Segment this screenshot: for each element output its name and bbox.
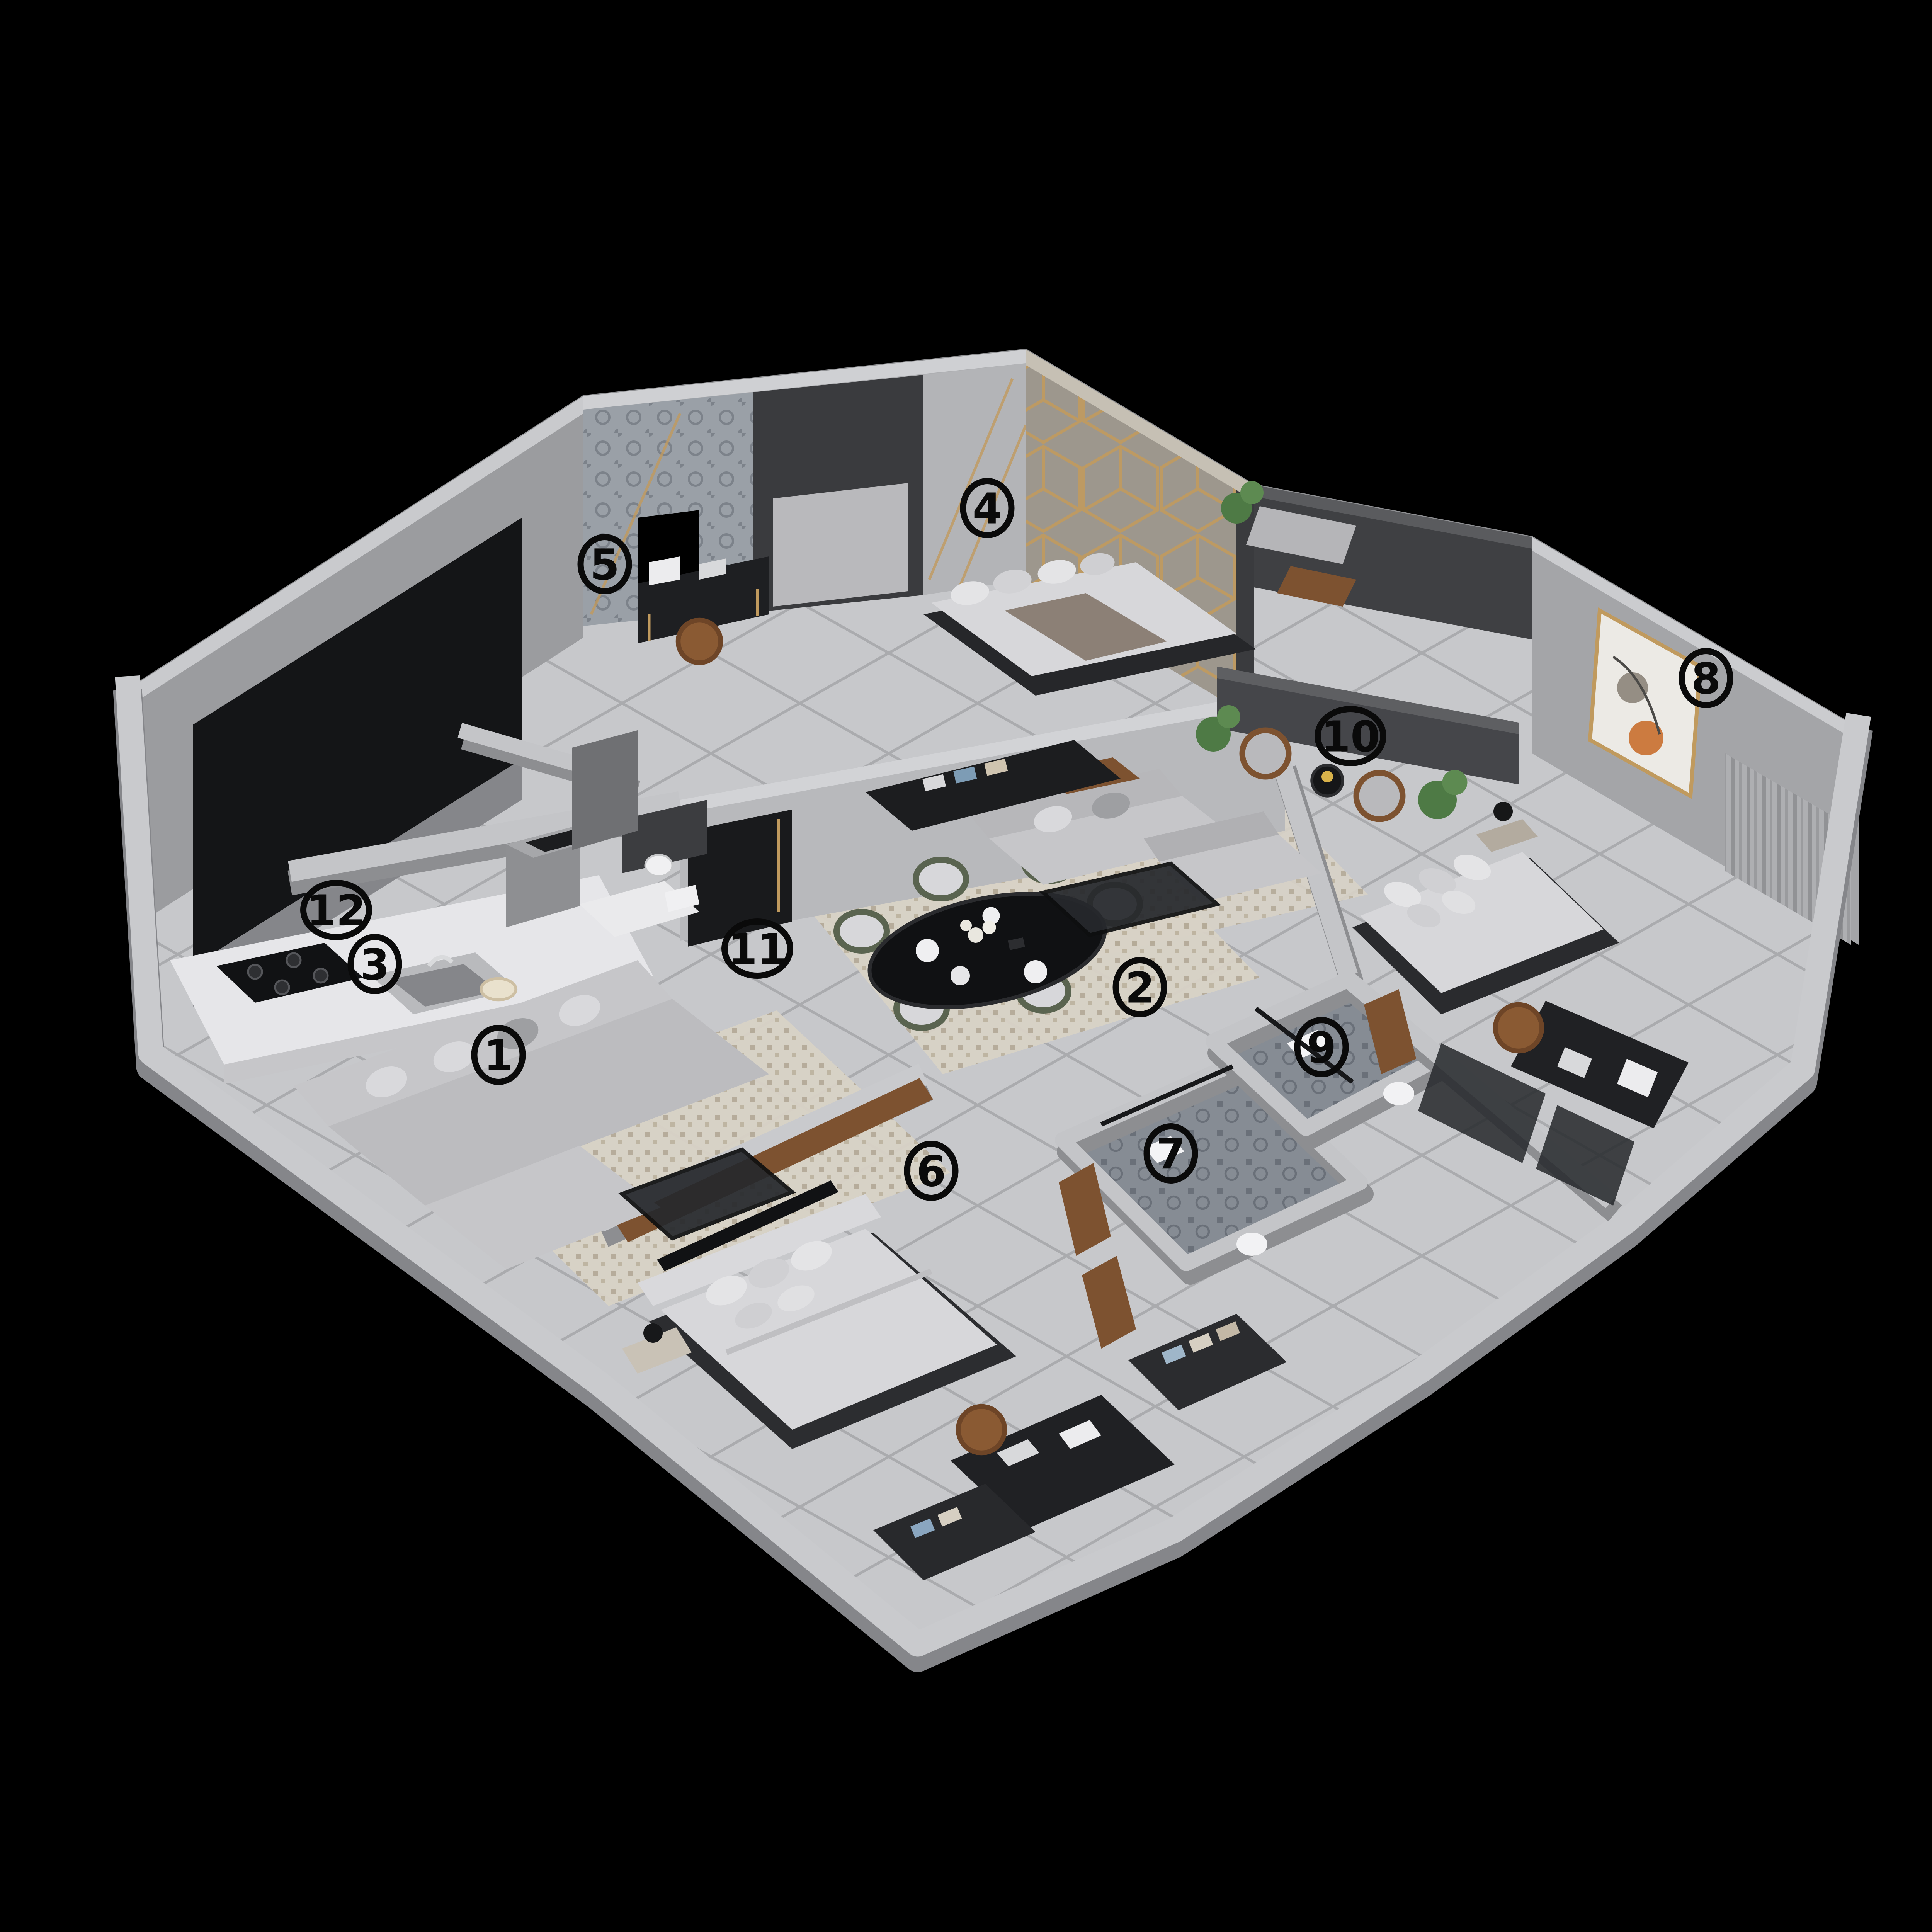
floorplan-canvas: 123456789101112 (0, 0, 1932, 1932)
marker-label: 3 (360, 940, 390, 990)
bath9-toilet (1383, 1082, 1414, 1105)
marker-label: 7 (1156, 1129, 1186, 1179)
marker-label: 8 (1691, 654, 1721, 704)
marker-label: 10 (1321, 712, 1380, 762)
marker-label: 11 (728, 925, 787, 974)
wood-armchair-2 (1356, 773, 1403, 819)
marker-label: 9 (1307, 1023, 1337, 1073)
desk-chair-6 (958, 1406, 1005, 1453)
fridge (572, 730, 638, 850)
lamp-8 (1493, 802, 1513, 821)
marker-12: 12 (303, 883, 369, 937)
desk-chair-8 (1495, 1005, 1542, 1051)
marker-label: 12 (306, 886, 366, 935)
gold-streak-section (923, 363, 1026, 595)
fruit-bowl (1321, 771, 1333, 782)
wood-armchair-1 (1242, 730, 1289, 777)
wc-toilet (645, 855, 672, 876)
marker-label: 2 (1125, 963, 1155, 1013)
bath7-toilet (1236, 1233, 1267, 1256)
marker-11: 11 (724, 922, 790, 976)
marker-10: 10 (1318, 709, 1383, 763)
marker-label: 4 (973, 484, 1002, 534)
marker-label: 1 (484, 1031, 514, 1080)
laundry-basket (481, 979, 516, 1000)
marker-label: 5 (590, 540, 620, 590)
marker-label: 6 (917, 1147, 946, 1196)
headboard-upholstered (773, 483, 908, 607)
office-chair (678, 620, 721, 663)
